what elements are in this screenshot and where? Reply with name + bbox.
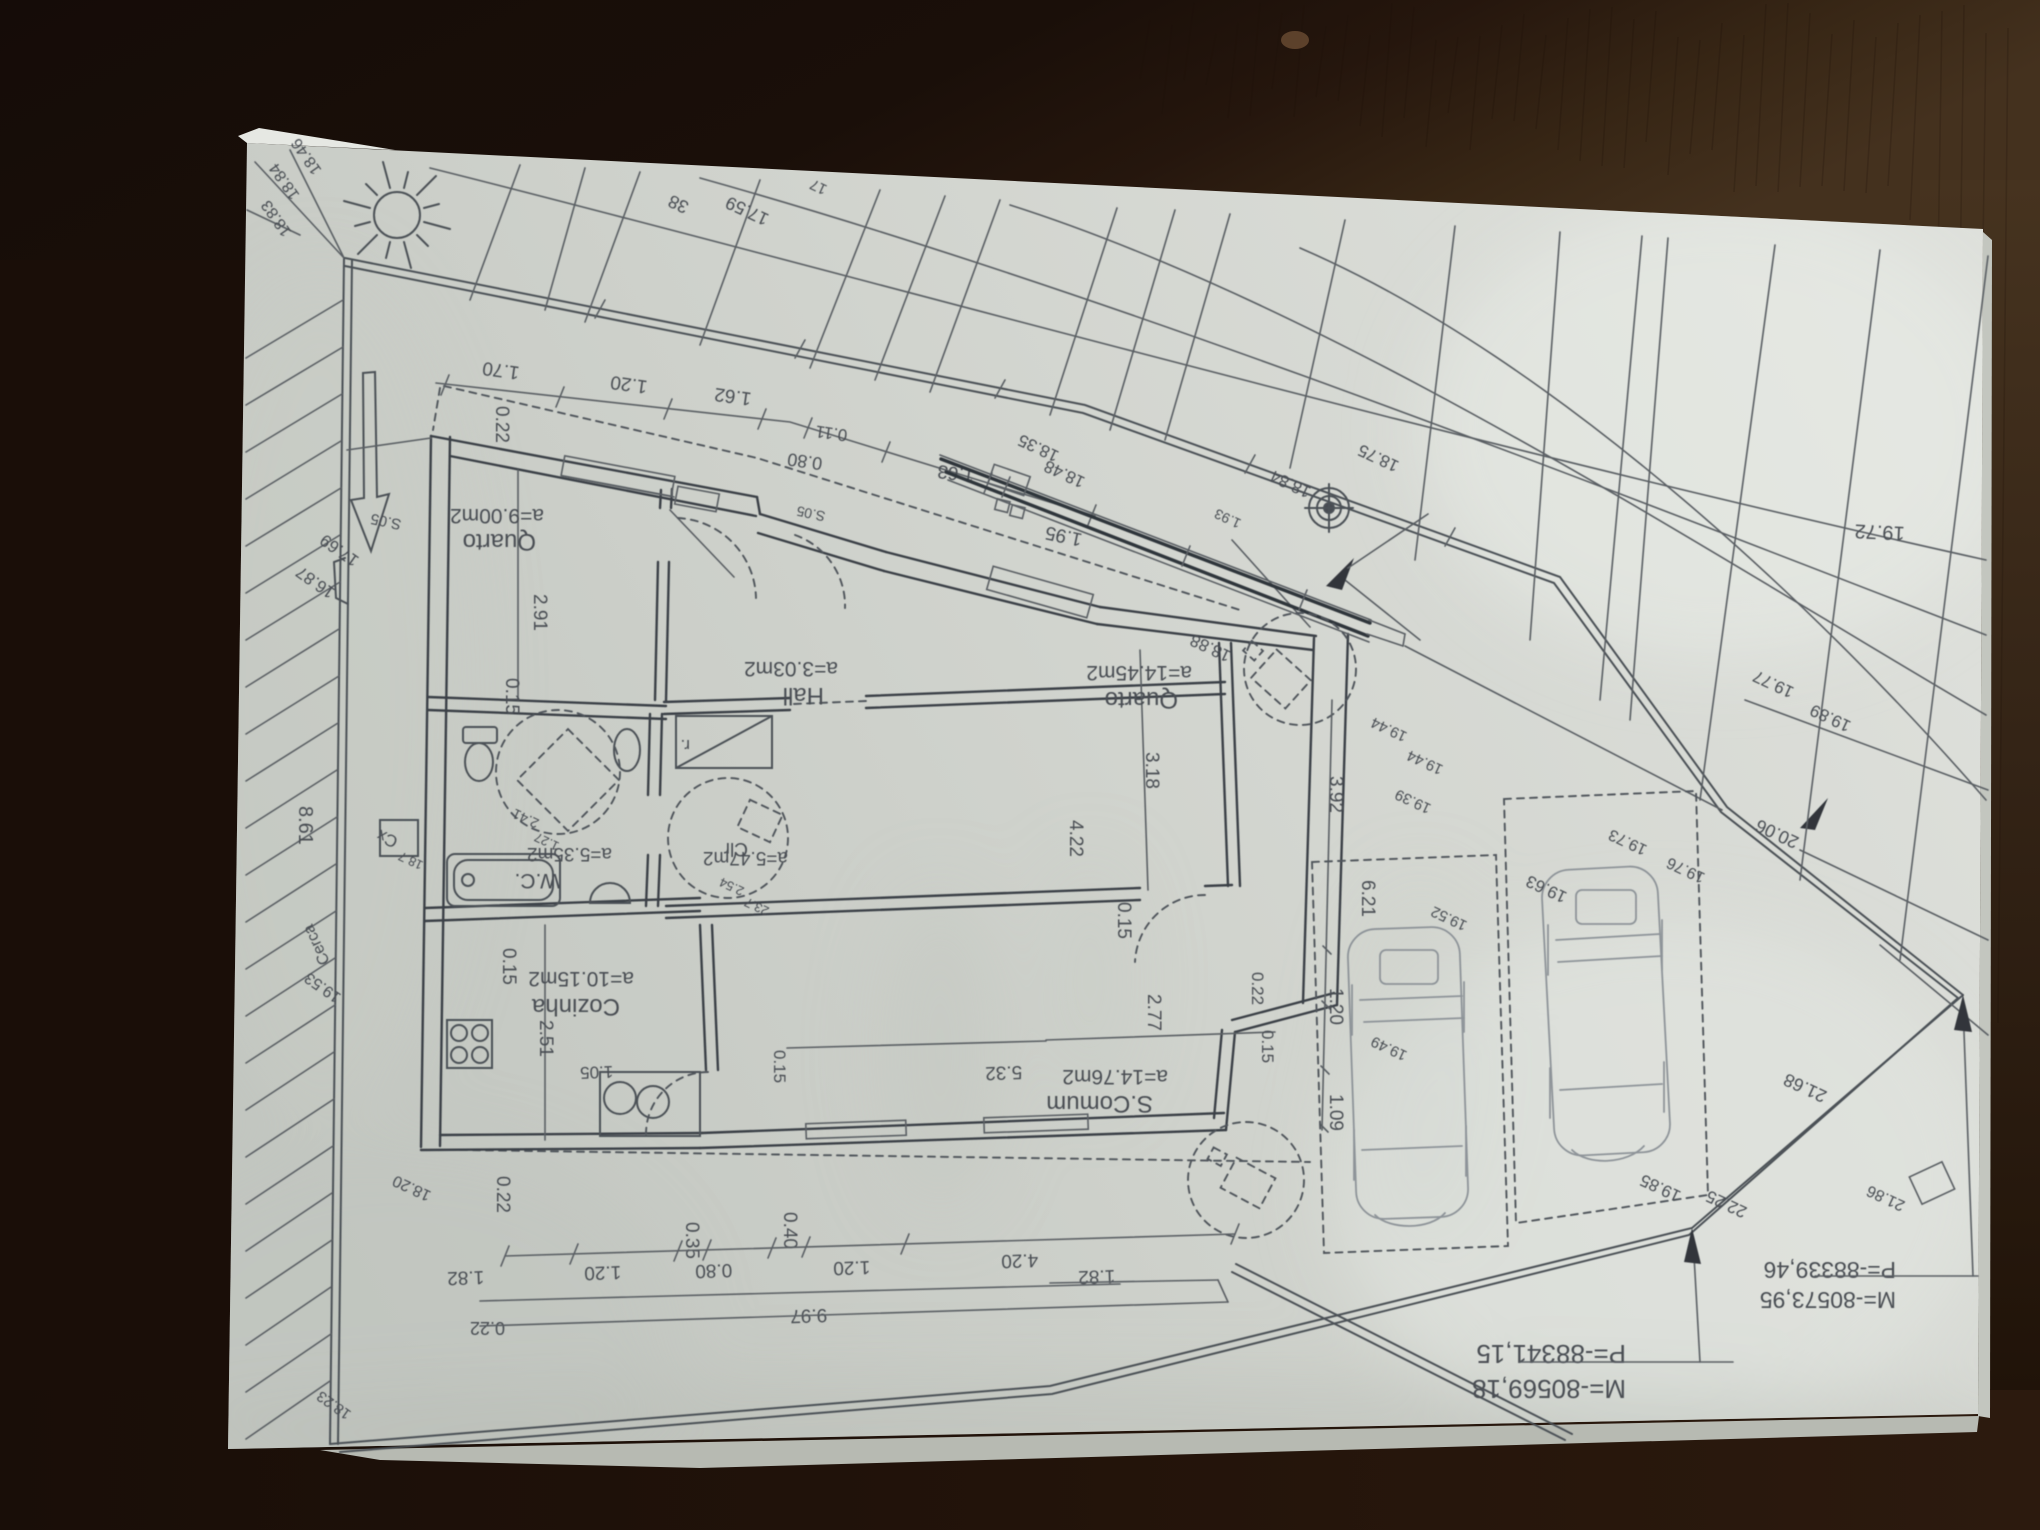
svg-text:a=10.15m2: a=10.15m2 bbox=[528, 967, 634, 990]
svg-text:Cozinha: Cozinha bbox=[531, 993, 620, 1020]
svg-text:W.C.: W.C. bbox=[515, 869, 561, 892]
svg-text:2.91: 2.91 bbox=[529, 594, 550, 631]
svg-text:r.: r. bbox=[681, 736, 690, 755]
svg-text:a=14.76m2: a=14.76m2 bbox=[1062, 1065, 1168, 1088]
svg-text:M=-80569,18: M=-80569,18 bbox=[1472, 1374, 1626, 1404]
svg-text:4.22: 4.22 bbox=[1065, 820, 1086, 857]
svg-text:0.22: 0.22 bbox=[491, 406, 512, 443]
svg-text:a=9.00m2: a=9.00m2 bbox=[450, 504, 544, 527]
svg-text:0.15: 0.15 bbox=[498, 948, 519, 985]
svg-text:P=-88339,46: P=-88339,46 bbox=[1764, 1257, 1896, 1283]
svg-text:a=3.03m2: a=3.03m2 bbox=[744, 657, 838, 680]
svg-text:6.21: 6.21 bbox=[1357, 880, 1378, 917]
svg-text:1.09: 1.09 bbox=[1325, 1094, 1346, 1131]
svg-text:3.18: 3.18 bbox=[1141, 752, 1162, 789]
svg-text:Quarto: Quarto bbox=[1105, 686, 1178, 713]
svg-text:Quarto: Quarto bbox=[463, 528, 536, 555]
svg-text:0.22: 0.22 bbox=[470, 1318, 505, 1338]
svg-text:0.15: 0.15 bbox=[770, 1050, 789, 1083]
svg-text:3.92: 3.92 bbox=[1325, 776, 1346, 813]
svg-text:0.22: 0.22 bbox=[492, 1176, 513, 1213]
svg-text:1.20: 1.20 bbox=[833, 1256, 871, 1278]
svg-text:P=-88341,15: P=-88341,15 bbox=[1476, 1339, 1626, 1369]
svg-text:0.40: 0.40 bbox=[779, 1212, 800, 1249]
svg-text:4.20: 4.20 bbox=[1001, 1249, 1039, 1271]
svg-text:Clr: Clr bbox=[723, 838, 748, 859]
svg-text:0.15: 0.15 bbox=[1113, 902, 1134, 939]
svg-text:0.80: 0.80 bbox=[695, 1259, 733, 1281]
svg-text:M=-80573,95: M=-80573,95 bbox=[1760, 1287, 1896, 1313]
svg-text:Hall: Hall bbox=[783, 682, 824, 709]
svg-text:0.15: 0.15 bbox=[501, 678, 522, 715]
svg-text:5.32: 5.32 bbox=[985, 1061, 1023, 1083]
svg-text:2.77: 2.77 bbox=[1143, 994, 1164, 1031]
svg-text:0.35: 0.35 bbox=[681, 1222, 702, 1259]
svg-text:1.20: 1.20 bbox=[1325, 988, 1346, 1025]
svg-text:2.51: 2.51 bbox=[535, 1020, 556, 1057]
svg-text:19.72: 19.72 bbox=[1854, 519, 1905, 544]
svg-text:S.Comum: S.Comum bbox=[1046, 1090, 1153, 1117]
svg-text:1.82: 1.82 bbox=[447, 1266, 485, 1288]
svg-text:1.05: 1.05 bbox=[580, 1062, 614, 1082]
svg-text:1.20: 1.20 bbox=[584, 1261, 622, 1283]
svg-text:0.22: 0.22 bbox=[1248, 972, 1267, 1005]
svg-text:8.61: 8.61 bbox=[294, 806, 316, 845]
svg-text:a=14.45m2: a=14.45m2 bbox=[1086, 661, 1192, 684]
svg-text:0.15: 0.15 bbox=[1258, 1030, 1277, 1063]
